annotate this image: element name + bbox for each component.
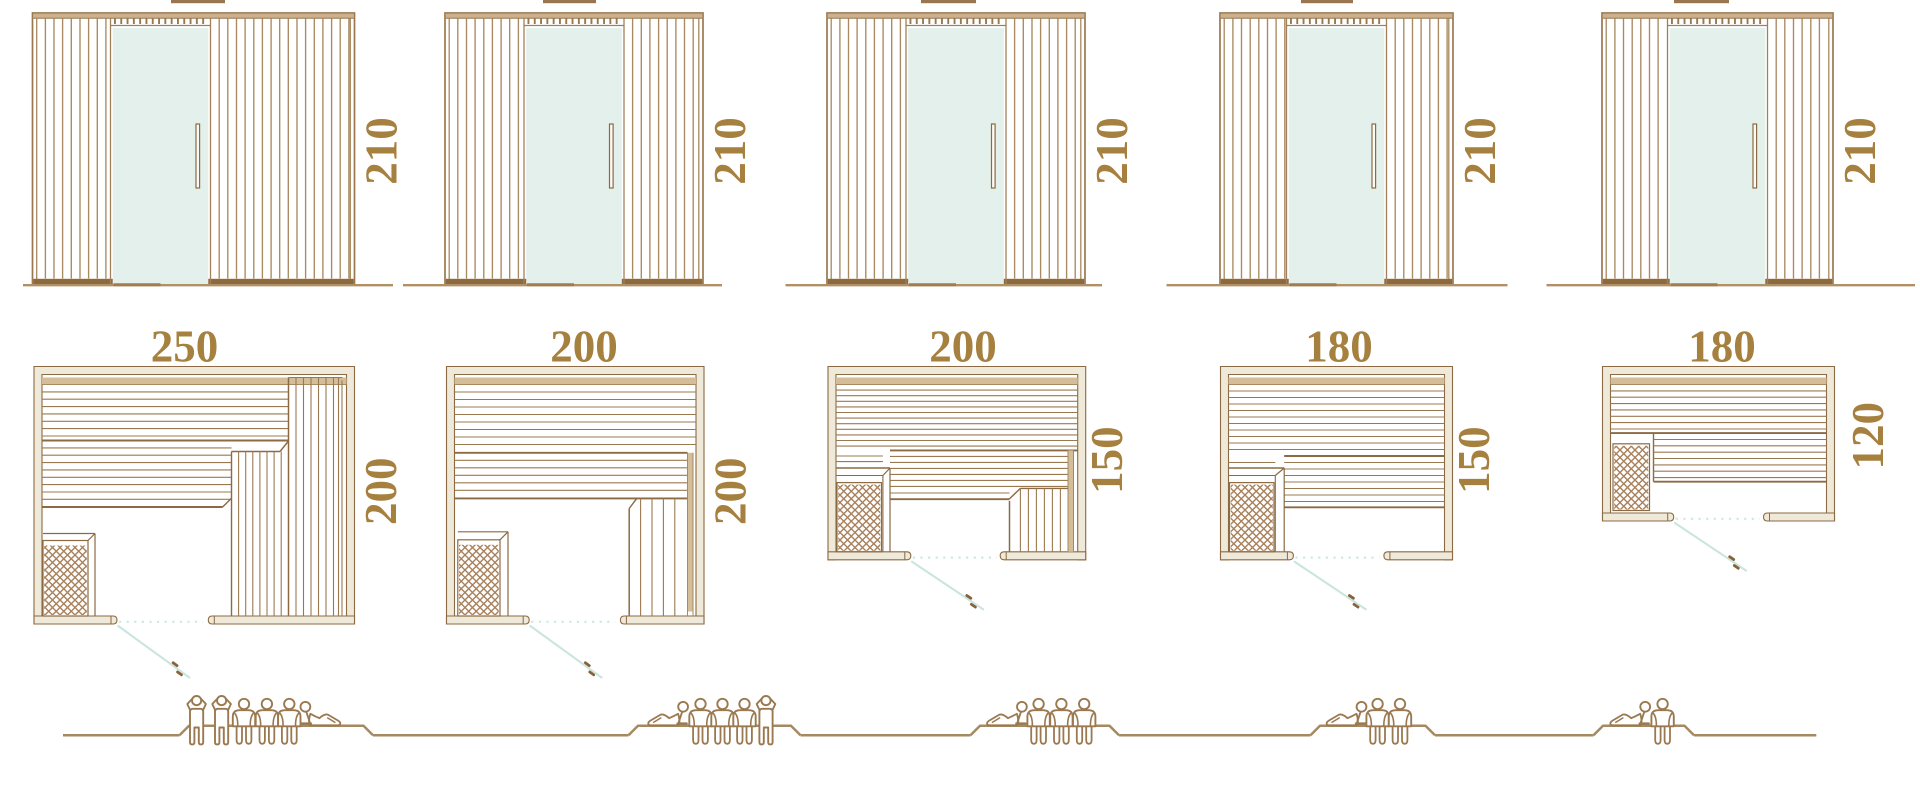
svg-text:250: 250 — [151, 322, 219, 372]
svg-text:210: 210 — [1455, 117, 1505, 185]
svg-text:210: 210 — [1835, 117, 1885, 185]
svg-text:150: 150 — [1082, 426, 1132, 494]
svg-text:200: 200 — [550, 322, 618, 372]
svg-text:120: 120 — [1843, 402, 1893, 470]
svg-text:180: 180 — [1688, 322, 1756, 372]
svg-text:210: 210 — [1087, 117, 1137, 185]
svg-text:210: 210 — [705, 117, 755, 185]
svg-text:180: 180 — [1305, 322, 1373, 372]
svg-text:200: 200 — [929, 322, 997, 372]
svg-text:150: 150 — [1449, 426, 1499, 494]
svg-text:200: 200 — [356, 457, 406, 525]
svg-text:200: 200 — [705, 457, 755, 525]
svg-text:210: 210 — [356, 117, 406, 185]
